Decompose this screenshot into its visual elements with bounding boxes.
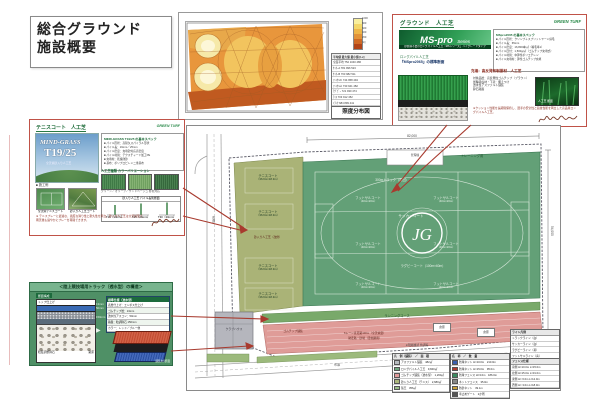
tennis-spec-list: ■ パイル形状：高耐久スパイラル形状■ パイル長：19mm／25mm■ パイル密… bbox=[104, 141, 181, 165]
illuminance-table-rows: 全面平均 752 1040 486ｻｯｶｰA 781 996 523ｻｯｶｰB … bbox=[332, 60, 380, 106]
tennis-court-label: テニスコート（36.6m×18.3m） bbox=[239, 210, 297, 218]
pavement-legend-table: 凡 例（舗装） ／ 面 積 アスファルト舗装 482㎡ロングパイル人工芝 9,8… bbox=[392, 353, 450, 393]
storage-label: 倉庫 bbox=[477, 328, 495, 337]
fence-spec-table: フェンス仕様 南側 H=10.0m L=15.0m北側 H=15.0m L=31… bbox=[510, 358, 560, 389]
tennis-spec-title: MIND-GRASS T19/25 の基本スペック bbox=[104, 136, 181, 141]
series-suffix: Series bbox=[457, 39, 470, 44]
tennis-spec-box: MIND-GRASS T19/25 の基本スペック ■ パイル形状：高耐久スパイ… bbox=[101, 133, 184, 171]
brand-model: T19/25 bbox=[44, 147, 76, 159]
building-side-label: クラブハウス bbox=[215, 328, 253, 332]
ground-turf-box: グラウンド 人工芝 GREEN TURF MS-pro Series 砂充填不要… bbox=[392, 14, 587, 127]
ms-pro-banner: MS-pro Series bbox=[399, 30, 491, 45]
heatmap-scale-ticks: 1000800 600400 200[lx] bbox=[362, 17, 380, 46]
track-table-rows: 表層仕上げ：エンボス仕上げゴムチップ層：13mm透水性アスコン：50mm路盤：粒… bbox=[107, 302, 169, 331]
fill-label: 充填：高反発有制振材 人工芝 bbox=[471, 69, 521, 74]
road-left-label: 市道 bbox=[211, 216, 215, 222]
brand-sub: 全天候砂入り人工芝 bbox=[46, 162, 71, 166]
pavement-caption: 舗装材 断面 bbox=[155, 360, 170, 364]
heatmap-graphic bbox=[186, 22, 328, 112]
storage-label: 倉庫 bbox=[433, 323, 451, 332]
photos-title: ■ 施工例 bbox=[36, 183, 48, 187]
futsal-label: フットサルコート（40m×20m） bbox=[337, 282, 399, 290]
track-spec-table: 標準仕様（透水型） 表層仕上げ：エンボス仕上げゴムチップ層：13mm透水性アスコ… bbox=[106, 296, 170, 333]
dim-right: 54,000 bbox=[550, 226, 554, 236]
futsal-label: フットサルコート（40m×20m） bbox=[415, 242, 477, 250]
page-title-line1: 総合グラウンド bbox=[37, 21, 165, 39]
track-note2: 助走路・砂場（走幅跳用） bbox=[325, 337, 405, 341]
tennis-note-label: 砂入り人工芝（改修） bbox=[237, 236, 299, 240]
swatch-caption: グリーン／オリーブ／サンドベージュ 各色対応 bbox=[101, 190, 160, 194]
site-note: ※現場確認 色調等 bbox=[387, 344, 447, 348]
soccer-label: サッカーコート bbox=[373, 214, 449, 219]
track-structure-box: ＜陸上競技場用トラック（透水型）の構造＞ 断面構成 トップ仕上げ 粒度調整砕石路… bbox=[29, 282, 173, 366]
tennis-box-header: テニスコート 人工芝 bbox=[36, 124, 86, 132]
illuminance-table: 平均値 最大値 最小値 [Lx] 全面平均 752 1040 486ｻｯｶｰA … bbox=[331, 53, 381, 107]
futsal-label: フットサルコート（40m×20m） bbox=[337, 196, 399, 204]
turf-blade-photo: 人工芝 断面 bbox=[535, 77, 579, 106]
track-box-title: ＜陸上競技場用トラック（透水型）の構造＞ bbox=[30, 283, 172, 292]
dim-top: 82,000 bbox=[387, 134, 437, 138]
futsal-label: フットサルコート（40m×20m） bbox=[415, 196, 477, 204]
track300-label: 300mトラック（周回） bbox=[342, 178, 442, 182]
site-plan-graphic: JG bbox=[187, 126, 560, 390]
net-legend-table: 名 称 ／ 数 量 防球ネット H=10.0m 210.0m防球ネット H=15… bbox=[450, 353, 510, 399]
section-note1: ロングパイル人工芝 bbox=[400, 55, 429, 59]
arrow-right-icon: ▶ bbox=[96, 327, 101, 334]
pavement-legend-rows: アスファルト舗装 482㎡ロングパイル人工芝 9,840㎡ゴムチップ舗装（透水型… bbox=[393, 360, 449, 392]
futsal-label: フットサルコート（40m×20m） bbox=[415, 282, 477, 290]
series-tagline: 砂充填不要のロングパイル人工芝『MSシリーズ』ハイグレードタイプ bbox=[399, 45, 491, 49]
training-zone-label: トレーニング用 bbox=[437, 154, 507, 158]
tennis-court-label: テニスコート（36.6m×18.3m） bbox=[239, 174, 297, 182]
page-title: 総合グラウンド 施設概要 bbox=[30, 16, 172, 68]
tennis-court-label: テニスコート（36.6m×18.3m） bbox=[239, 292, 297, 300]
site-plan: JG 82,000 54,000 市道 市道 テニスコート（36 bbox=[186, 125, 561, 391]
scan-fold-line bbox=[9, 135, 10, 365]
greenturf-logo: GREEN TURF bbox=[554, 19, 581, 24]
turf-photo-caption: 人工芝 断面 bbox=[538, 100, 553, 104]
heatmap-caption: 照度分布図 bbox=[331, 106, 381, 119]
rugby-label: ラグビーコート（100m×60m） bbox=[375, 264, 471, 268]
turf-cross-section-image bbox=[398, 75, 468, 121]
installation-photos: 全天候テニスコート 砂入り人工芝コート bbox=[36, 188, 98, 214]
building-top-label: 管理棟 bbox=[391, 154, 439, 158]
handwritten-note bbox=[537, 113, 579, 125]
brand-name: MIND-GRASS bbox=[40, 139, 80, 146]
illuminance-map bbox=[185, 21, 329, 113]
fence-table-rows: 南側 H=10.0m L=15.0m北側 H=15.0m L=31.0m東側 H… bbox=[511, 365, 559, 388]
ground-spec-box: MSpro2065 の基本スペック ■ パイル形状：クリンプ＋スプリットヤーン併… bbox=[493, 29, 585, 72]
tennis-turf-box: テニスコート 人工芝 GREEN TURF MIND-GRASS T19/25 … bbox=[29, 119, 185, 236]
illuminance-panel: 1000800 600400 200[lx] 平均値 最大値 最小値 [Lx] … bbox=[178, 12, 383, 120]
ground-right-specs: 対象品層：高反発性ゴムチップ（ブラウン）衝撃吸収材・下塗：備えつけ透水性アスファ… bbox=[473, 77, 533, 92]
scanned-facility-overview-page: { "page": {"title_line1": "総合グラウンド", "ti… bbox=[0, 0, 600, 400]
ground-spec-title: MSpro2065 の基本スペック bbox=[496, 32, 582, 37]
ground-box-header: グラウンド 人工芝 bbox=[400, 19, 454, 28]
pavement-layer-diagram: トップ仕上げ 粒度調整砕石路床 bbox=[36, 299, 96, 363]
mind-grass-brand-image: MIND-GRASS T19/25 全天候砂入り人工芝 bbox=[35, 133, 99, 183]
page-title-line2: 施設概要 bbox=[37, 39, 165, 57]
pavement-sample-image bbox=[108, 331, 171, 361]
tennis-note: ※ テニスプレーに最適な、適度な滑り性と耐久性を両立。砂入り人工芝は全天候型で、… bbox=[36, 215, 148, 222]
track-material-label: ゴムチップ舗装 bbox=[271, 330, 315, 334]
ground-spec-list: ■ パイル形状：クリンプ＋スプリットヤーン併毛■ パイル長：65mm■ パイル密… bbox=[496, 37, 582, 61]
turf-color-swatches bbox=[101, 174, 179, 189]
section-tab: 断面構成 bbox=[36, 293, 52, 298]
greenturf-logo: GREEN TURF bbox=[157, 124, 180, 128]
handwritten-note bbox=[150, 216, 180, 229]
running-course-label: ランニングコース bbox=[347, 314, 447, 318]
swatch-title: 人工芝種類 カラーバリエーション bbox=[101, 169, 150, 173]
futsal-label: フットサルコート（40m×20m） bbox=[337, 242, 399, 250]
net-legend-rows: 防球ネット H=10.0m 210.0m防球ネット H=15.0m 95.0m防… bbox=[451, 360, 509, 398]
tennis-court-label: テニスコート（36.6m×18.3m） bbox=[239, 264, 297, 272]
section-note2: 『MSpro2065』の標準断面 bbox=[400, 60, 444, 65]
